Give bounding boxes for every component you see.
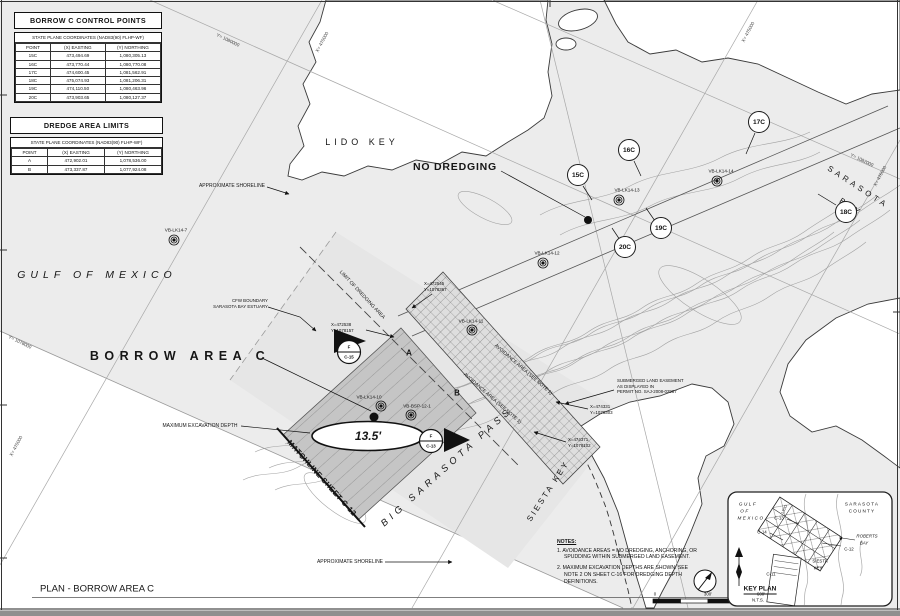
flag-f-label: F (348, 345, 351, 350)
point-b-label: B (454, 389, 460, 398)
vibracore-label: VB-LK14-10 (356, 395, 381, 400)
max-excavation-depth-label: MAXIMUM EXCAVATION DEPTH (162, 423, 237, 429)
key-plan-county-label: SARASOTA (845, 502, 879, 507)
coordinate-callout: X=472538 Y=1078157 (331, 322, 354, 333)
coordinate-callout: X=474331 Y=1078303 (590, 404, 613, 415)
cell: 1,081,206.31 (105, 77, 160, 85)
key-plan-roberts-bay-label: ROBERTS (856, 534, 877, 539)
vibracore-label: VB-LK14-14 (708, 169, 733, 174)
col-northing: (Y) NORTHING (105, 149, 162, 157)
cell: 473,494.69 (50, 52, 105, 60)
key-plan-siesta-label: KEY (814, 566, 823, 571)
cell: 17C (16, 68, 51, 76)
coord-x: X=474331 (590, 404, 613, 410)
cell: 1,081,562.91 (105, 68, 160, 76)
coord-y: Y=1078157 (331, 328, 354, 334)
cell: 473,770.44 (50, 60, 105, 68)
table-row: A472,902.011,078,536.00 (12, 157, 162, 165)
control-point-circle-19c: 19C (650, 217, 672, 239)
cell: 475,074.93 (50, 77, 105, 85)
sheet-title: PLAN - BORROW AREA C (40, 584, 154, 595)
cell: 18C (16, 77, 51, 85)
table-title: BORROW C CONTROL POINTS (14, 12, 162, 29)
scale-label-mid: 300' (704, 592, 712, 597)
cell: 1,080,770.08 (105, 60, 160, 68)
key-plan-sheet-label-c13: C-13 (774, 516, 784, 521)
easement-line: PERMIT NO. SAJ-2008-02987 (617, 389, 684, 395)
key-plan-siesta-label: SIESTA (812, 559, 827, 564)
key-plan-gulf-label: OF (740, 509, 749, 514)
no-dredging-point-dot (584, 216, 592, 224)
submerged-easement-label: SUBMERGED LAND EASEMENT AS DISPLAYED IN … (617, 378, 684, 395)
table-row: 17C474,600.451,081,562.91 (16, 68, 161, 76)
table-row: 16C473,770.441,080,770.08 (16, 60, 161, 68)
key-plan-sheet-label-c11: C-11 (766, 572, 775, 577)
flag-c13-label: C-13 (426, 444, 436, 449)
table-title: DREDGE AREA LIMITS (10, 117, 163, 134)
cell: 1,078,536.00 (105, 157, 162, 165)
note-line: SPUDDING WITHIN SUBMERGED LAND EASEMENT. (557, 554, 717, 561)
depth-value-label: 13.5' (355, 429, 381, 443)
cell: 474,110.50 (50, 85, 105, 93)
key-plan-nts-label: N.T.S. (752, 598, 764, 603)
table-subtitle: STATE PLANE COORDINATES (NAD83(90) FLHP-… (15, 33, 161, 43)
control-point-circle-16c: 16C (618, 139, 640, 161)
table-row: 15C473,494.691,080,305.13 (16, 52, 161, 60)
flag-f-label: F (430, 434, 433, 439)
note-line: NOTE 2 ON SHEET C-16 FOR DREDGING DEPTH (557, 572, 717, 579)
coord-y: Y=1078102 (568, 443, 591, 449)
vibracore-label: VB-LK14-7 (165, 228, 187, 233)
cell: 19C (16, 85, 51, 93)
gulf-of-mexico-label: GULF OF MEXICO (17, 269, 176, 281)
approximate-shoreline-label: APPROXIMATE SHORELINE (317, 559, 383, 565)
cell: 1,080,127.37 (105, 93, 160, 101)
vibracore-label: VB-LK14-12 (534, 251, 559, 256)
table-subtitle: STATE PLANE COORDINATES (NAD83(90) FLHP-… (11, 138, 162, 148)
excavation-point-dot (370, 413, 379, 422)
vibracore-label: VB-BSP-12-1 (403, 404, 431, 409)
key-plan-title: KEY PLAN (744, 586, 777, 595)
cell: 1,077,924.08 (105, 165, 162, 173)
key-plan-roberts-bay-label: BAY (860, 541, 868, 546)
key-plan-gulf-label: GULF (739, 502, 757, 507)
key-plan-county-label: COUNTY (849, 509, 876, 514)
col-point: POINT (12, 149, 48, 157)
note-line: 1. AVOIDANCE AREAS = NO DREDGING, ANCHOR… (557, 548, 717, 555)
control-points-table: BORROW C CONTROL POINTS STATE PLANE COOR… (14, 12, 162, 103)
cfw-boundary-label: CFW BOUNDARY SARASOTA BAY ESTUARY (204, 298, 268, 309)
cell: 16C (16, 60, 51, 68)
col-easting: (X) EASTING (48, 149, 105, 157)
control-point-circle-17c: 17C (748, 111, 770, 133)
col-northing: (Y) NORTHING (105, 44, 160, 52)
coordinate-callout: X=474371 Y=1078102 (568, 437, 591, 448)
cell: A (12, 157, 48, 165)
plan-sheet: BORROW C CONTROL POINTS STATE PLANE COOR… (0, 0, 900, 616)
note-line: 2. MAXIMUM EXCAVATION DEPTHS ARE SHOWN. … (557, 565, 717, 572)
control-point-circle-20c: 20C (614, 236, 636, 258)
cell: 473,903.65 (50, 93, 105, 101)
coord-y: Y=1078367 (424, 287, 447, 293)
point-a-label: A (406, 349, 412, 358)
table-row: 20C473,903.651,080,127.37 (16, 93, 161, 101)
scale-label-start: 0 (654, 592, 656, 597)
coord-y: Y=1078303 (590, 410, 613, 416)
cell: 473,337.87 (48, 165, 105, 173)
approximate-shoreline-label: APPROXIMATE SHORELINE (199, 183, 265, 189)
cell: 1,080,305.13 (105, 52, 160, 60)
col-easting: (X) EASTING (50, 44, 105, 52)
borrow-area-c-label: BORROW AREA C (90, 349, 270, 363)
note-line: DEFINITIONS. (557, 579, 717, 586)
cell: 1,080,463.96 (105, 85, 160, 93)
notes-block: NOTES: 1. AVOIDANCE AREAS = NO DREDGING,… (557, 539, 717, 589)
col-point: POINT (16, 44, 51, 52)
cfw-line: SARASOTA BAY ESTUARY (204, 304, 268, 310)
dredge-limits-table: DREDGE AREA LIMITS STATE PLANE COORDINAT… (10, 117, 163, 175)
table-row: 19C474,110.501,080,463.96 (16, 85, 161, 93)
lido-key-label: LIDO KEY (325, 137, 399, 147)
control-point-circle-15c: 15C (567, 164, 589, 186)
key-plan-sheet-label-c14: C-14 (757, 530, 767, 535)
coord-x: X=472545 (424, 281, 447, 287)
key-plan-sheet-label-c12: C-12 (844, 547, 854, 552)
no-dredging-label: NO DREDGING (413, 161, 497, 173)
table-row: B473,337.871,077,924.08 (12, 165, 162, 173)
table-row: 18C475,074.931,081,206.31 (16, 77, 161, 85)
easement-line: SUBMERGED LAND EASEMENT (617, 378, 684, 384)
vibracore-label: VB-LK14-13 (614, 188, 639, 193)
cell: 20C (16, 93, 51, 101)
key-plan-gulf-label: MEXICO (737, 516, 764, 521)
cell: 474,600.45 (50, 68, 105, 76)
flag-c15-label: C-15 (344, 355, 354, 360)
control-point-circle-18c: 18C (835, 201, 857, 223)
table-header-row: POINT (X) EASTING (Y) NORTHING (16, 44, 161, 52)
cell: 15C (16, 52, 51, 60)
cell: B (12, 165, 48, 173)
coord-x: X=472538 (331, 322, 354, 328)
vibracore-label: VB-LK14-11 (459, 319, 484, 324)
table-header-row: POINT (X) EASTING (Y) NORTHING (12, 149, 162, 157)
coord-x: X=474371 (568, 437, 591, 443)
coordinate-callout: X=472545 Y=1078367 (424, 281, 447, 292)
notes-heading: NOTES: (557, 539, 717, 546)
cell: 472,902.01 (48, 157, 105, 165)
